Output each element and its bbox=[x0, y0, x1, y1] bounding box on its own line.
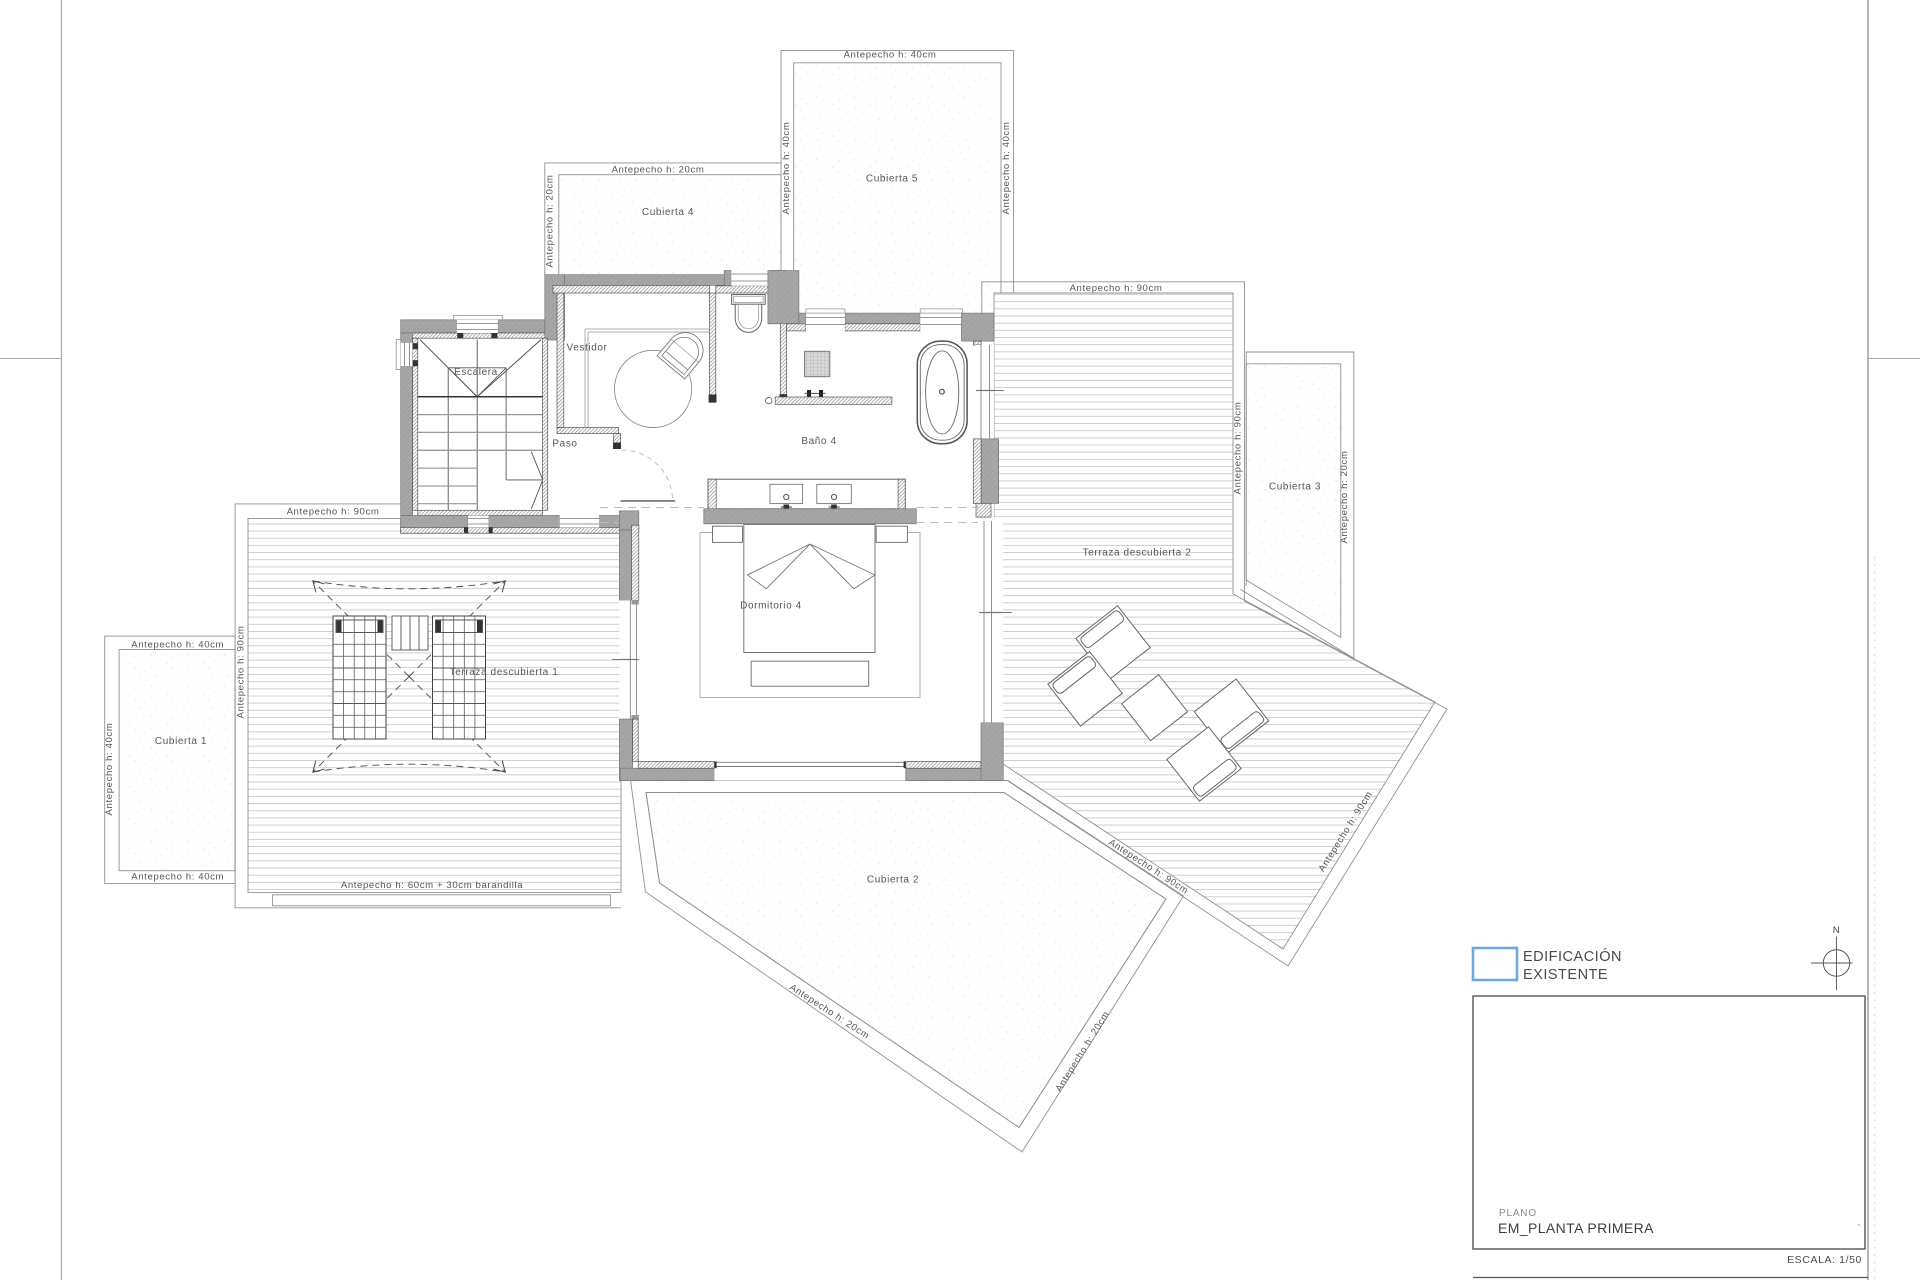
svg-text:Antepecho h: 20cm: Antepecho h: 20cm bbox=[1339, 451, 1350, 544]
svg-text:Antepecho h: 40cm: Antepecho h: 40cm bbox=[1001, 122, 1012, 215]
svg-text:ESCALA: 1/50: ESCALA: 1/50 bbox=[1787, 1254, 1862, 1266]
svg-text:Antepecho h: 90cm: Antepecho h: 90cm bbox=[236, 626, 247, 719]
svg-text:Cubierta 4: Cubierta 4 bbox=[642, 207, 694, 218]
svg-text:Paso: Paso bbox=[552, 439, 577, 450]
svg-text:PLANO: PLANO bbox=[1499, 1208, 1537, 1219]
svg-text:Antepecho h: 40cm: Antepecho h: 40cm bbox=[131, 640, 224, 651]
svg-text:Antepecho h: 40cm: Antepecho h: 40cm bbox=[844, 50, 937, 61]
svg-text:Cubierta 5: Cubierta 5 bbox=[866, 174, 918, 185]
svg-text:Antepecho h: 40cm: Antepecho h: 40cm bbox=[131, 871, 224, 882]
svg-text:N: N bbox=[1833, 925, 1841, 936]
svg-text:Terraza descubierta 2: Terraza descubierta 2 bbox=[1083, 548, 1192, 559]
svg-text:Antepecho h: 90cm: Antepecho h: 90cm bbox=[287, 507, 380, 518]
svg-text:Antepecho h: 90cm: Antepecho h: 90cm bbox=[1232, 402, 1243, 495]
svg-text:Terraza descubierta 1: Terraza descubierta 1 bbox=[450, 667, 559, 678]
svg-text:Escalera: Escalera bbox=[454, 367, 498, 378]
svg-text:Cubierta 2: Cubierta 2 bbox=[867, 875, 919, 886]
svg-text:Antepecho h: 40cm: Antepecho h: 40cm bbox=[781, 122, 792, 215]
svg-text:EXISTENTE: EXISTENTE bbox=[1523, 967, 1608, 983]
svg-text:Antepecho h: 20cm: Antepecho h: 20cm bbox=[612, 165, 705, 176]
svg-text:Vestidor: Vestidor bbox=[567, 343, 608, 354]
svg-text:Cubierta 3: Cubierta 3 bbox=[1269, 482, 1321, 493]
svg-text:EDIFICACIÓN: EDIFICACIÓN bbox=[1523, 948, 1622, 965]
svg-text:Antepecho h: 40cm: Antepecho h: 40cm bbox=[104, 723, 115, 816]
svg-text:Antepecho h: 20cm: Antepecho h: 20cm bbox=[545, 175, 556, 268]
svg-text:Dormitorio 4: Dormitorio 4 bbox=[740, 601, 802, 612]
svg-text:Antepecho h: 90cm: Antepecho h: 90cm bbox=[1070, 283, 1163, 294]
svg-text:Baño 4: Baño 4 bbox=[801, 436, 836, 447]
svg-text:EM_PLANTA PRIMERA: EM_PLANTA PRIMERA bbox=[1498, 1220, 1654, 1236]
svg-text:Antepecho h: 60cm + 30cm bara: Antepecho h: 60cm + 30cm barandilla bbox=[341, 880, 523, 891]
svg-text:Cubierta 1: Cubierta 1 bbox=[155, 736, 207, 747]
